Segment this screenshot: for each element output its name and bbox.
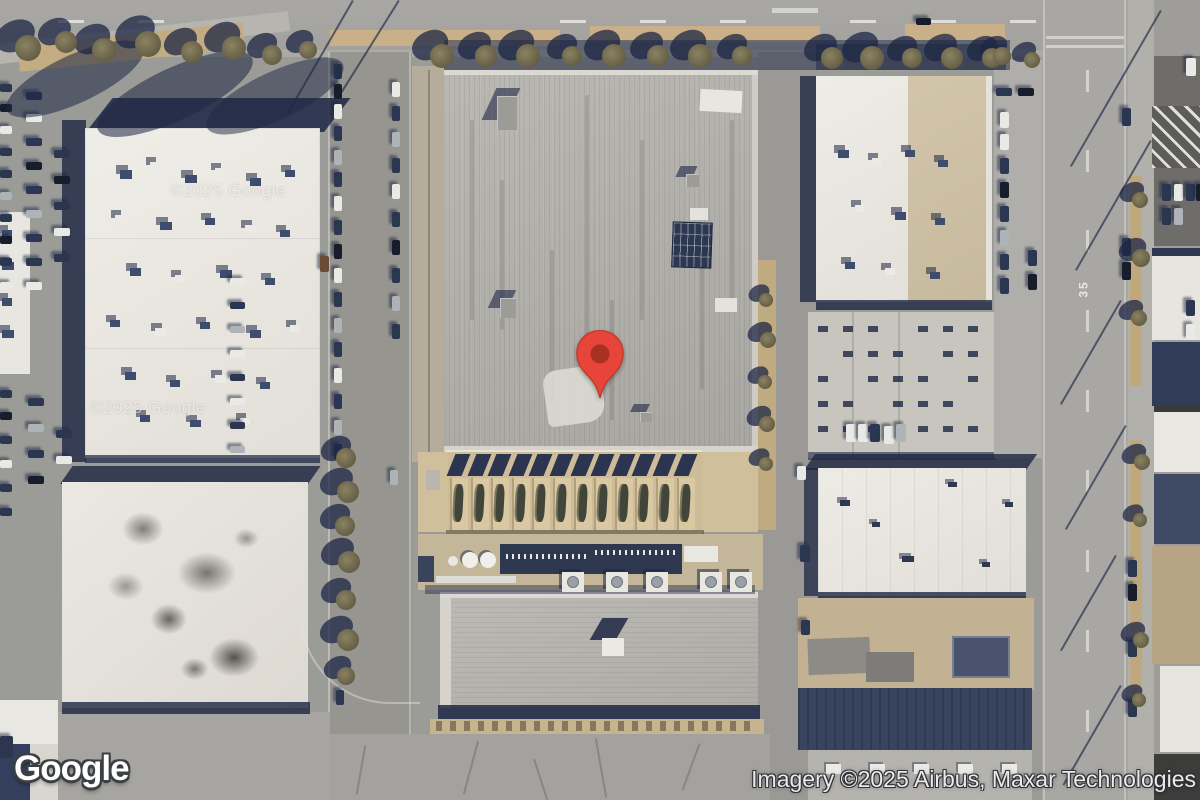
car bbox=[1174, 184, 1183, 201]
rooftop-unit bbox=[170, 380, 180, 387]
rooftop-hut bbox=[640, 412, 652, 422]
car bbox=[1000, 112, 1009, 128]
imagery-attribution: Imagery ©2025 Airbus, Maxar Technologies bbox=[751, 766, 1196, 793]
tree bbox=[758, 375, 772, 389]
rooftop-unit bbox=[872, 522, 880, 527]
tree bbox=[647, 45, 669, 67]
equip-dots bbox=[595, 550, 679, 555]
hvac-fan bbox=[567, 576, 579, 588]
rooftop-unit bbox=[120, 170, 132, 179]
roof-parapet bbox=[444, 70, 758, 75]
crosswalk-line bbox=[1046, 36, 1124, 39]
rooftop-unit bbox=[260, 382, 270, 389]
road-right bbox=[1042, 0, 1128, 800]
roof-skylight bbox=[671, 221, 713, 268]
car bbox=[0, 148, 12, 156]
rooftop-unit bbox=[205, 218, 215, 225]
car bbox=[334, 220, 342, 235]
rooftop-unit bbox=[175, 275, 185, 282]
roof-grunge bbox=[100, 500, 272, 692]
tree bbox=[1133, 513, 1147, 527]
loading-tick bbox=[702, 721, 708, 731]
roof-vent-mark bbox=[943, 326, 953, 332]
loading-tick bbox=[744, 721, 750, 731]
car bbox=[28, 398, 44, 406]
map-watermark: ©2025 Google bbox=[170, 181, 286, 201]
lane-dash bbox=[1086, 630, 1089, 652]
lane-dash bbox=[720, 20, 746, 23]
loading-tick bbox=[576, 721, 582, 731]
yard-patch bbox=[866, 652, 914, 682]
lane-dash bbox=[1086, 310, 1089, 332]
loading-tick bbox=[674, 721, 680, 731]
building-e-tan bbox=[908, 76, 992, 302]
car bbox=[334, 342, 342, 357]
car bbox=[1186, 300, 1195, 316]
tree bbox=[335, 516, 355, 536]
tree bbox=[1132, 693, 1146, 707]
car bbox=[230, 278, 245, 285]
lane-dash bbox=[1086, 70, 1089, 92]
rooftop-unit bbox=[160, 222, 172, 230]
car bbox=[896, 424, 906, 442]
curb-curve bbox=[300, 612, 420, 704]
rooftop-unit bbox=[280, 230, 290, 237]
roof-vent-mark bbox=[893, 376, 903, 382]
rooftop-unit bbox=[930, 272, 940, 279]
car bbox=[392, 212, 400, 227]
rooftop-unit bbox=[200, 322, 210, 329]
tree bbox=[1134, 454, 1150, 470]
rooftop-hut bbox=[500, 298, 516, 318]
building-block-white bbox=[1160, 666, 1200, 752]
car bbox=[26, 186, 42, 194]
roof-streak bbox=[640, 140, 644, 320]
car bbox=[1196, 184, 1200, 201]
vent-box bbox=[426, 470, 440, 490]
lane-dash bbox=[1086, 550, 1089, 572]
building-g-roof bbox=[798, 688, 1032, 750]
lane-dash bbox=[850, 20, 876, 23]
car bbox=[390, 470, 398, 485]
building-d-roof bbox=[440, 592, 758, 708]
loading-tick bbox=[646, 721, 652, 731]
car bbox=[916, 18, 931, 25]
car bbox=[1000, 158, 1009, 174]
rooftop-unit bbox=[948, 482, 957, 487]
roof-vent-mark bbox=[943, 426, 953, 432]
car bbox=[1000, 134, 1009, 150]
rooftop-unit bbox=[220, 270, 232, 278]
tank bbox=[448, 556, 458, 566]
roof-vent-mark bbox=[843, 351, 853, 357]
car bbox=[1122, 108, 1131, 126]
car bbox=[0, 282, 12, 290]
car bbox=[996, 88, 1012, 96]
car bbox=[0, 736, 13, 758]
rooftop-unit bbox=[215, 375, 226, 383]
car bbox=[334, 368, 342, 383]
loading-tick bbox=[660, 721, 666, 731]
car bbox=[0, 508, 12, 516]
car bbox=[26, 282, 42, 290]
loading-tick bbox=[492, 721, 498, 731]
hvac-fan bbox=[611, 576, 623, 588]
equip-unit-dark bbox=[500, 544, 682, 574]
roof-vent-mark bbox=[843, 326, 853, 332]
car bbox=[26, 138, 42, 146]
tree bbox=[759, 293, 773, 307]
loading-tick bbox=[534, 721, 540, 731]
building-shadow bbox=[816, 300, 992, 310]
roof-vent-mark bbox=[918, 326, 928, 332]
car bbox=[334, 268, 342, 283]
pavement-bottom-center bbox=[330, 734, 770, 800]
tree bbox=[55, 31, 77, 53]
car bbox=[230, 302, 245, 309]
car bbox=[336, 690, 344, 705]
roof-streak bbox=[585, 95, 589, 355]
roof-seam bbox=[85, 238, 320, 239]
rooftop-unit bbox=[115, 215, 125, 223]
hatch-zone bbox=[1152, 106, 1200, 168]
building-block-dark bbox=[1154, 474, 1200, 544]
rooftop-unit bbox=[265, 278, 275, 285]
car bbox=[392, 82, 400, 97]
roof-vent-mark bbox=[943, 351, 953, 357]
loading-tick bbox=[562, 721, 568, 731]
rooftop-unit bbox=[855, 205, 865, 212]
tree bbox=[688, 44, 712, 68]
equip-dots bbox=[506, 554, 586, 559]
tree bbox=[337, 481, 359, 503]
car bbox=[334, 244, 342, 259]
car bbox=[230, 350, 245, 357]
satellite-map-canvas[interactable]: 35 GoogleImagery ©2025 Airbus, Maxar Tec… bbox=[0, 0, 1200, 800]
building-shadow bbox=[85, 455, 320, 463]
rooftop-unit bbox=[250, 330, 261, 338]
rooftop-unit bbox=[125, 372, 136, 380]
car bbox=[26, 162, 42, 170]
rooftop-unit bbox=[2, 330, 14, 338]
car bbox=[1122, 262, 1131, 280]
building-block-dark bbox=[1152, 342, 1200, 406]
tree bbox=[15, 35, 41, 61]
car bbox=[870, 424, 880, 442]
rooftop-unit bbox=[290, 325, 300, 332]
tree bbox=[92, 38, 116, 62]
car bbox=[1000, 182, 1009, 198]
rooftop-unit bbox=[2, 298, 12, 306]
loading-tick bbox=[548, 721, 554, 731]
car bbox=[334, 394, 342, 409]
car bbox=[858, 424, 868, 442]
pipe bbox=[436, 576, 516, 583]
loading-tick bbox=[436, 721, 442, 731]
car bbox=[334, 150, 342, 165]
car bbox=[1028, 250, 1037, 266]
loading-tick bbox=[478, 721, 484, 731]
loading-tick bbox=[716, 721, 722, 731]
car bbox=[1000, 206, 1009, 222]
rooftop-unit bbox=[285, 170, 295, 177]
roof-vent-mark bbox=[968, 351, 978, 357]
car bbox=[1000, 278, 1009, 294]
rooftop-unit bbox=[838, 150, 849, 158]
car bbox=[1186, 58, 1196, 76]
roof-vent-mark bbox=[893, 401, 903, 407]
roof-streak bbox=[730, 120, 734, 300]
car bbox=[334, 126, 342, 141]
roof-vent-mark bbox=[918, 376, 928, 382]
tree bbox=[759, 416, 775, 432]
tree bbox=[821, 47, 843, 69]
lot-line bbox=[428, 70, 430, 458]
car bbox=[1162, 208, 1171, 225]
tree bbox=[941, 47, 963, 69]
yard-patch bbox=[807, 637, 870, 675]
car bbox=[230, 374, 245, 381]
roof-streak bbox=[470, 120, 474, 320]
lane-dash bbox=[1010, 20, 1036, 23]
car bbox=[230, 326, 245, 333]
roof-vent-mark bbox=[968, 326, 978, 332]
rooftop-unit bbox=[982, 562, 990, 567]
google-logo[interactable]: Google bbox=[14, 749, 129, 789]
tree bbox=[602, 44, 626, 68]
car bbox=[392, 296, 400, 311]
car bbox=[392, 106, 400, 121]
yard-equip bbox=[952, 636, 1010, 678]
lane-dash bbox=[1086, 390, 1089, 412]
map-pin-icon[interactable] bbox=[572, 328, 628, 406]
car bbox=[56, 430, 72, 438]
tree bbox=[336, 590, 356, 610]
tree bbox=[337, 667, 355, 685]
roof-parapet bbox=[986, 76, 992, 302]
car bbox=[54, 176, 70, 184]
car bbox=[26, 234, 42, 242]
loading-tick bbox=[730, 721, 736, 731]
rooftop-unit bbox=[872, 158, 882, 165]
building-shadow bbox=[800, 76, 816, 302]
building-f-roof bbox=[818, 468, 1026, 596]
tree bbox=[1132, 192, 1148, 208]
yard bbox=[1152, 546, 1200, 664]
rooftop-unit bbox=[130, 268, 141, 276]
loading-tick bbox=[604, 721, 610, 731]
car bbox=[26, 258, 42, 266]
car bbox=[0, 390, 12, 398]
loading-tick bbox=[450, 721, 456, 731]
rooftop-unit bbox=[935, 218, 945, 225]
car bbox=[1000, 230, 1009, 246]
roof-vent-mark bbox=[818, 376, 828, 382]
car bbox=[54, 254, 70, 262]
lane-dash bbox=[1086, 710, 1089, 732]
car bbox=[230, 446, 245, 453]
roof-vent-mark bbox=[943, 401, 953, 407]
roof-vent-mark bbox=[868, 326, 878, 332]
rooftop-unit bbox=[190, 420, 201, 427]
car bbox=[26, 210, 42, 218]
car bbox=[28, 476, 44, 484]
tank bbox=[462, 552, 478, 568]
rooftop-hut bbox=[686, 174, 699, 187]
car bbox=[334, 172, 342, 187]
roof-vent-mark bbox=[893, 351, 903, 357]
car bbox=[334, 318, 342, 333]
tree bbox=[337, 629, 359, 651]
road-speed-marking: 35 bbox=[1077, 280, 1091, 297]
rooftop-unit bbox=[885, 268, 895, 275]
car bbox=[56, 456, 72, 464]
tree bbox=[760, 332, 776, 348]
car bbox=[28, 424, 44, 432]
car bbox=[392, 184, 400, 199]
car bbox=[392, 158, 400, 173]
lane-dash bbox=[640, 20, 666, 23]
car bbox=[0, 484, 12, 492]
rooftop-unit bbox=[902, 556, 914, 562]
tree bbox=[902, 48, 922, 68]
building-edge bbox=[1154, 406, 1200, 412]
rooftop-unit bbox=[155, 328, 166, 336]
rooftop-unit bbox=[150, 162, 160, 170]
roof-vent-mark bbox=[868, 376, 878, 382]
lane-dash bbox=[930, 20, 956, 23]
car bbox=[230, 422, 245, 429]
roof-white-patch bbox=[715, 298, 737, 312]
rooftop-hut bbox=[602, 638, 624, 656]
car bbox=[392, 132, 400, 147]
tree bbox=[222, 36, 246, 60]
car bbox=[28, 450, 44, 458]
car bbox=[797, 466, 806, 480]
roof-vent-mark bbox=[843, 401, 853, 407]
roof-white-patch bbox=[699, 89, 742, 113]
car bbox=[1018, 88, 1034, 96]
tree bbox=[338, 551, 360, 573]
lane-dash bbox=[1086, 150, 1089, 172]
loading-tick bbox=[464, 721, 470, 731]
tank bbox=[480, 552, 496, 568]
car bbox=[1174, 208, 1183, 225]
car bbox=[1128, 584, 1137, 601]
tree bbox=[135, 31, 161, 57]
tree bbox=[336, 448, 356, 468]
loading-tick bbox=[520, 721, 526, 731]
car bbox=[1162, 184, 1171, 201]
loading-tick bbox=[506, 721, 512, 731]
tree bbox=[759, 457, 773, 471]
hvac-fan bbox=[735, 576, 747, 588]
roof-vent-mark bbox=[968, 376, 978, 382]
car bbox=[0, 236, 12, 244]
car bbox=[884, 426, 894, 444]
rooftop-unit bbox=[1005, 502, 1013, 507]
rooftop-hut bbox=[497, 96, 517, 130]
tree bbox=[1131, 310, 1147, 326]
tree bbox=[262, 45, 282, 65]
tree bbox=[516, 44, 540, 68]
rooftop-unit bbox=[110, 320, 120, 327]
car bbox=[392, 240, 400, 255]
roof-vent-mark bbox=[918, 401, 928, 407]
car bbox=[54, 202, 70, 210]
car bbox=[334, 84, 342, 99]
car bbox=[334, 104, 342, 119]
tree bbox=[299, 41, 317, 59]
building-block-white bbox=[1154, 406, 1200, 472]
hvac-fan bbox=[651, 576, 663, 588]
car bbox=[334, 292, 342, 307]
building-shadow bbox=[804, 468, 819, 596]
car bbox=[800, 545, 810, 562]
car bbox=[54, 228, 70, 236]
car bbox=[801, 620, 810, 635]
rooftop-unit bbox=[845, 262, 855, 269]
car bbox=[0, 460, 12, 468]
car bbox=[1028, 274, 1037, 290]
tree bbox=[181, 41, 203, 63]
tree bbox=[475, 45, 497, 67]
car bbox=[1186, 324, 1195, 340]
car bbox=[1000, 254, 1009, 270]
car bbox=[1128, 560, 1137, 577]
car bbox=[0, 170, 12, 178]
car bbox=[334, 196, 342, 211]
car bbox=[392, 268, 400, 283]
car bbox=[0, 412, 12, 420]
roof-vent-mark bbox=[968, 426, 978, 432]
car bbox=[0, 84, 12, 92]
roof-seam bbox=[85, 348, 320, 349]
car bbox=[0, 126, 12, 134]
tree bbox=[562, 46, 582, 66]
tree bbox=[1132, 249, 1150, 267]
tree bbox=[430, 44, 454, 68]
building-shadow bbox=[62, 120, 86, 462]
car bbox=[0, 258, 12, 266]
tree bbox=[732, 46, 752, 66]
building-shadow bbox=[438, 705, 760, 719]
loading-tick bbox=[590, 721, 596, 731]
roof-bright-edge bbox=[440, 598, 451, 708]
car bbox=[846, 424, 856, 442]
curb bbox=[328, 52, 330, 800]
rooftop-unit bbox=[895, 212, 906, 220]
tree bbox=[993, 47, 1011, 65]
rooftop-unit bbox=[938, 160, 948, 167]
loading-tick bbox=[632, 721, 638, 731]
car bbox=[320, 256, 329, 272]
building-edge bbox=[1152, 248, 1200, 256]
vent-tan bbox=[418, 452, 448, 532]
tree bbox=[1024, 52, 1040, 68]
roof-vent-mark bbox=[818, 426, 828, 432]
tree bbox=[1133, 632, 1149, 648]
roof-vent-mark bbox=[868, 351, 878, 357]
map-watermark: ©2025 Google bbox=[90, 398, 206, 418]
roof-vent-mark bbox=[818, 326, 828, 332]
roof-white-patch bbox=[690, 208, 708, 220]
car bbox=[1186, 184, 1195, 201]
roof-vent-mark bbox=[818, 401, 828, 407]
hvac-fan bbox=[705, 576, 717, 588]
car bbox=[230, 398, 245, 405]
roof-vent-mark bbox=[918, 426, 928, 432]
